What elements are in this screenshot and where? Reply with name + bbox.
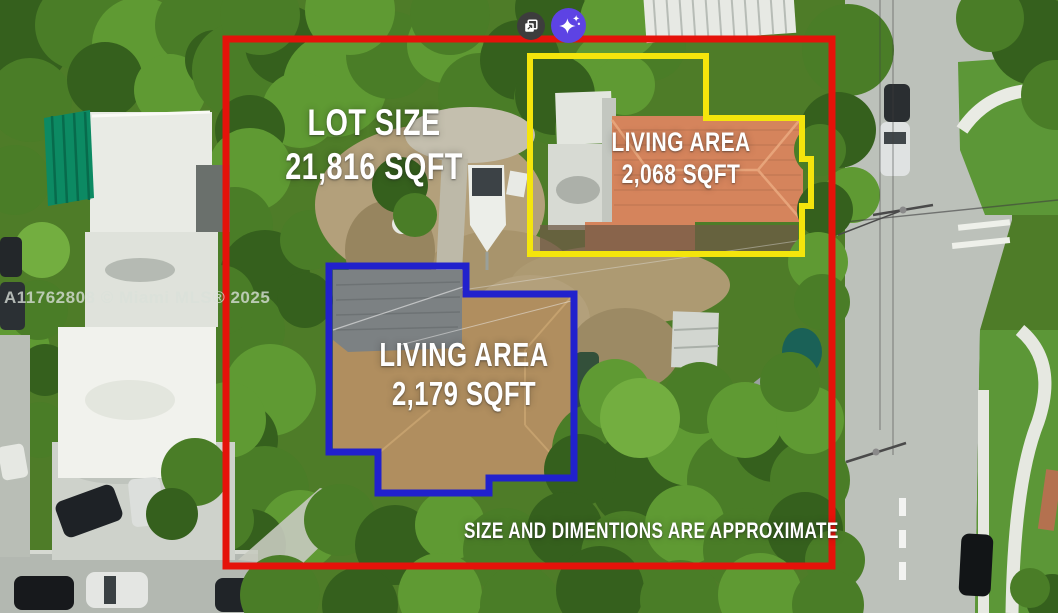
rear-house-label: LIVING AREA 2,068 SQFT [603, 127, 759, 191]
front-house-title: LIVING AREA [378, 336, 550, 375]
mls-watermark: A11762808 © Miami MLS® 2025 [4, 288, 270, 308]
boat-windshield [472, 168, 502, 196]
listing-photo: LOT SIZE 21,816 SQFT LIVING AREA 2,068 S… [0, 0, 1058, 613]
ai-enhance-button[interactable] [551, 8, 586, 48]
disclaimer-label: SIZE AND DIMENTIONS ARE APPROXIMATE [464, 518, 776, 544]
front-house-label: LIVING AREA 2,179 SQFT [378, 336, 550, 414]
front-house-value: 2,179 SQFT [378, 375, 550, 414]
lot-size-title: LOT SIZE [273, 101, 476, 145]
compare-images-button[interactable] [517, 12, 545, 45]
rear-house-value: 2,068 SQFT [603, 159, 759, 191]
lot-size-value: 21,816 SQFT [273, 145, 476, 189]
lot-size-label: LOT SIZE 21,816 SQFT [273, 101, 476, 188]
trailer-shed [671, 311, 719, 369]
rear-house-title: LIVING AREA [603, 127, 759, 159]
